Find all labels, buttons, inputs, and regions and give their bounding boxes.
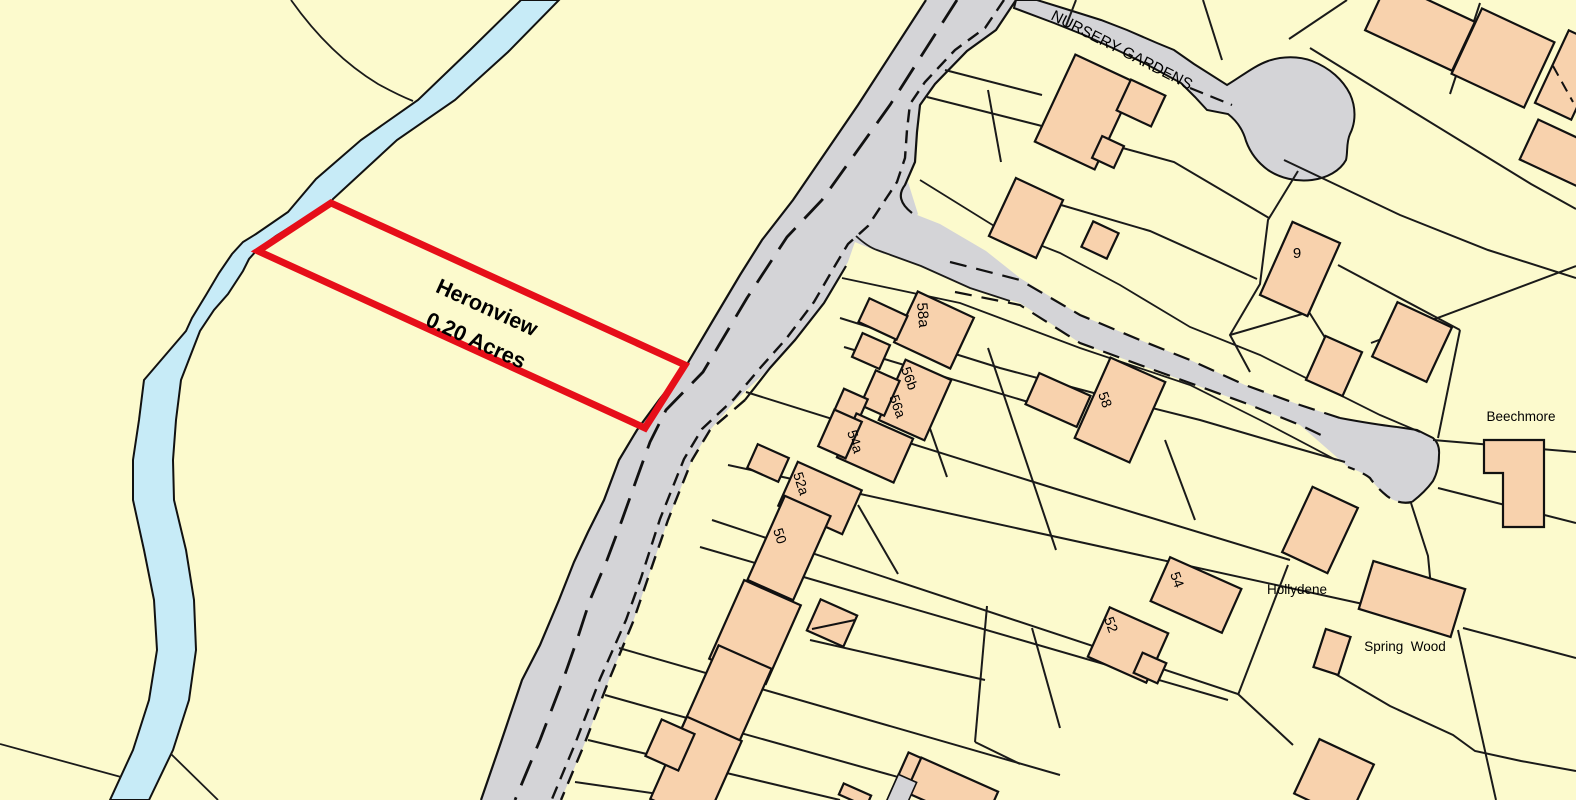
svg-text:Beechmore: Beechmore — [1486, 409, 1555, 424]
svg-text:Spring Wood: Spring Wood — [1364, 639, 1446, 654]
svg-text:Hollydene: Hollydene — [1267, 582, 1327, 597]
svg-text:9: 9 — [1293, 245, 1301, 262]
svg-text:58a: 58a — [913, 302, 932, 329]
